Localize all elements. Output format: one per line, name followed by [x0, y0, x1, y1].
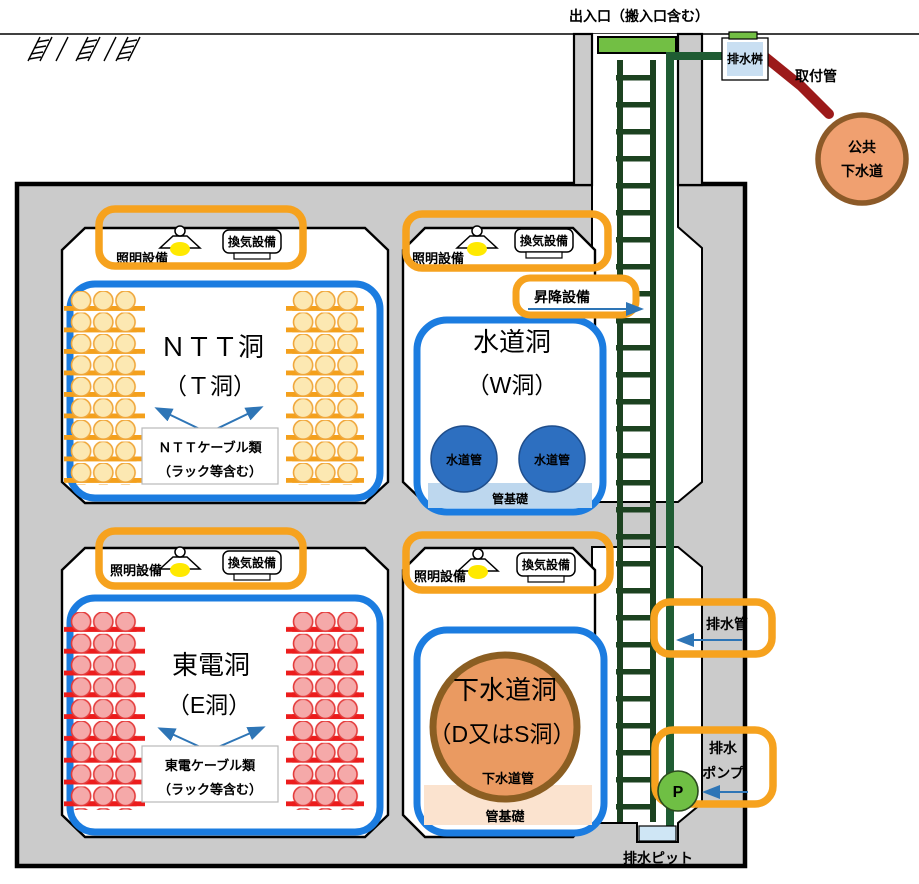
ntt-cable-label-1: ＮＴＴケーブル類	[158, 440, 262, 455]
utility-tunnel-diagram: 出入口（搬入口含む） 取付管 公共 下水道 ＮＴＴ洞 （Ｔ洞） ＮＴＴケーブル類…	[0, 0, 919, 884]
sewer-vent-label: 換気設備	[522, 557, 570, 572]
water-lighting-label: 照明設備	[412, 251, 464, 266]
basin-grate	[729, 32, 757, 39]
sewer-subtitle: （D又はS洞）	[429, 721, 576, 747]
entrance-label: 出入口（搬入口含む）	[569, 8, 709, 24]
water-pipe-label-1: 水道管	[446, 452, 482, 467]
diagram-canvas: 出入口（搬入口含む） 取付管 公共 下水道 ＮＴＴ洞 （Ｔ洞） ＮＴＴケーブル類…	[0, 0, 919, 884]
ntt-vent-label: 換気設備	[228, 234, 276, 249]
lamp-hook-icon	[472, 226, 482, 236]
lamp-bulb-icon	[467, 242, 487, 256]
touden-cables-left	[70, 612, 137, 810]
water-title: 水道洞	[473, 327, 551, 357]
sewer-lighting-label: 照明設備	[414, 569, 466, 584]
drain-pump-label-2: ポンプ	[702, 765, 745, 781]
drain-pit	[639, 826, 676, 841]
lamp-hook-icon	[175, 547, 185, 557]
lamp-bulb-icon	[170, 563, 190, 577]
sewer-title: 下水道洞	[453, 675, 557, 705]
touden-vent-label: 換気設備	[228, 555, 276, 570]
water-vent-label: 換気設備	[520, 233, 568, 248]
public-sewer-circle	[818, 115, 906, 203]
ladder-rail-left	[617, 60, 623, 822]
entrance-hatch	[598, 37, 676, 53]
lamp-hook-icon	[473, 549, 483, 559]
touden-cable-label-1: 東電ケーブル類	[165, 758, 256, 773]
water-subtitle: （W洞）	[467, 372, 558, 398]
touden-lighting-label: 照明設備	[110, 563, 162, 578]
vent-duct-icon	[528, 576, 564, 582]
sewer-foundation-label: 管基礎	[485, 809, 525, 824]
drain-pipe-vertical	[666, 52, 674, 839]
ntt-title: ＮＴＴ洞	[160, 332, 264, 362]
sewer-pipe-label: 下水道管	[482, 771, 534, 786]
touden-chamber: 東電洞 （E洞） 東電ケーブル類 （ラック等含む）	[62, 548, 388, 837]
lamp-bulb-icon	[170, 242, 190, 256]
public-sewer-label-1: 公共	[848, 139, 876, 155]
shaft-wall-left	[574, 34, 592, 185]
public-sewer-label-2: 下水道	[841, 163, 883, 179]
vent-duct-icon	[234, 574, 270, 580]
lift-annotation: 昇降設備	[516, 278, 640, 315]
touden-cable-label-2: （ラック等含む）	[158, 782, 262, 797]
basin-label: 排水桝	[727, 51, 763, 66]
lift-label: 昇降設備	[534, 289, 590, 305]
drainage-basin: 排水桝	[722, 32, 768, 80]
drain-pipe-horizontal	[666, 52, 724, 60]
lamp-bulb-icon	[468, 565, 488, 579]
water-foundation-label: 管基礎	[492, 491, 529, 506]
ntt-cables-right	[292, 291, 359, 485]
ladder-rail-right	[650, 60, 656, 822]
drain-pump-label-1: 排水	[709, 740, 738, 756]
ntt-cable-label-2: （ラック等含む）	[158, 464, 262, 479]
touden-cables-right	[292, 612, 359, 810]
drain-pipe-label: 排水管	[706, 616, 748, 632]
drain-pit-label: 排水ピット	[623, 850, 693, 866]
lamp-hook-icon	[175, 226, 185, 236]
vent-duct-icon	[526, 252, 562, 258]
water-pipe-label-2: 水道管	[534, 452, 570, 467]
ntt-subtitle: （Ｔ洞）	[164, 373, 256, 399]
attachment-pipe-label: 取付管	[795, 68, 837, 84]
pump-symbol: P	[673, 784, 684, 801]
ntt-cables-left	[70, 291, 137, 485]
vent-duct-icon	[234, 253, 270, 259]
touden-subtitle: （E洞）	[167, 692, 251, 718]
touden-title: 東電洞	[172, 650, 250, 680]
